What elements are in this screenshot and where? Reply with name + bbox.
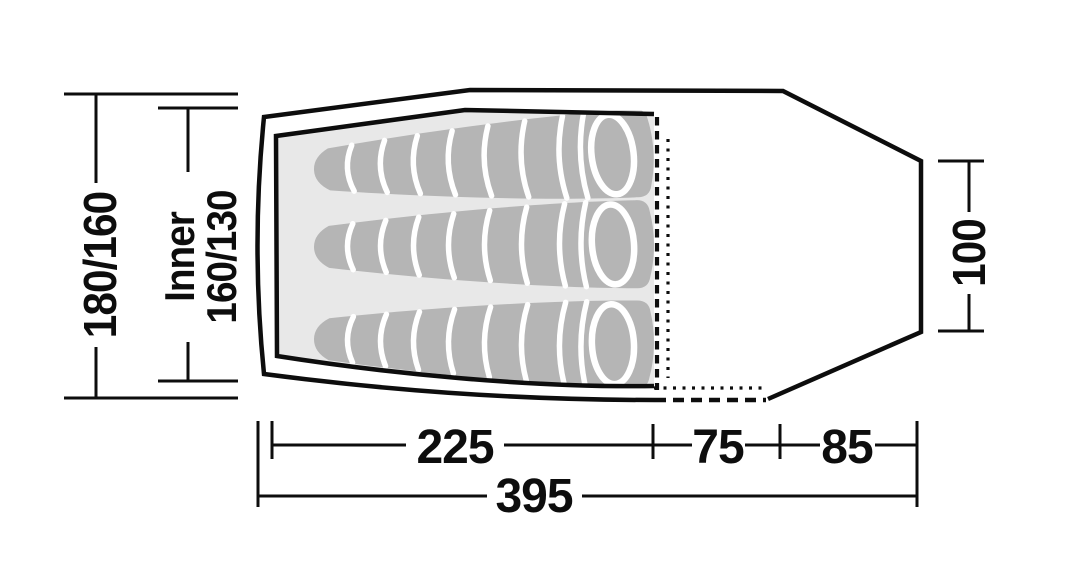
dim-outer-width-label: 180/160 xyxy=(75,192,126,339)
dim-total-length xyxy=(258,421,917,507)
dim-inner-width-label-line1: Inner xyxy=(155,211,203,302)
tent-dimension-diagram: 180/160 Inner 160/130 100 225 75 85 395 xyxy=(0,0,1080,576)
dim-rear-section-label: 85 xyxy=(821,421,873,474)
dim-vestibule-label: 75 xyxy=(692,421,744,474)
dim-inner-length-label: 225 xyxy=(416,421,493,474)
dim-total-length-label: 395 xyxy=(495,470,572,523)
dim-inner-width-label-line2: 160/130 xyxy=(197,190,245,323)
dim-rear-width-label: 100 xyxy=(944,219,995,287)
dim-sections xyxy=(272,421,917,459)
